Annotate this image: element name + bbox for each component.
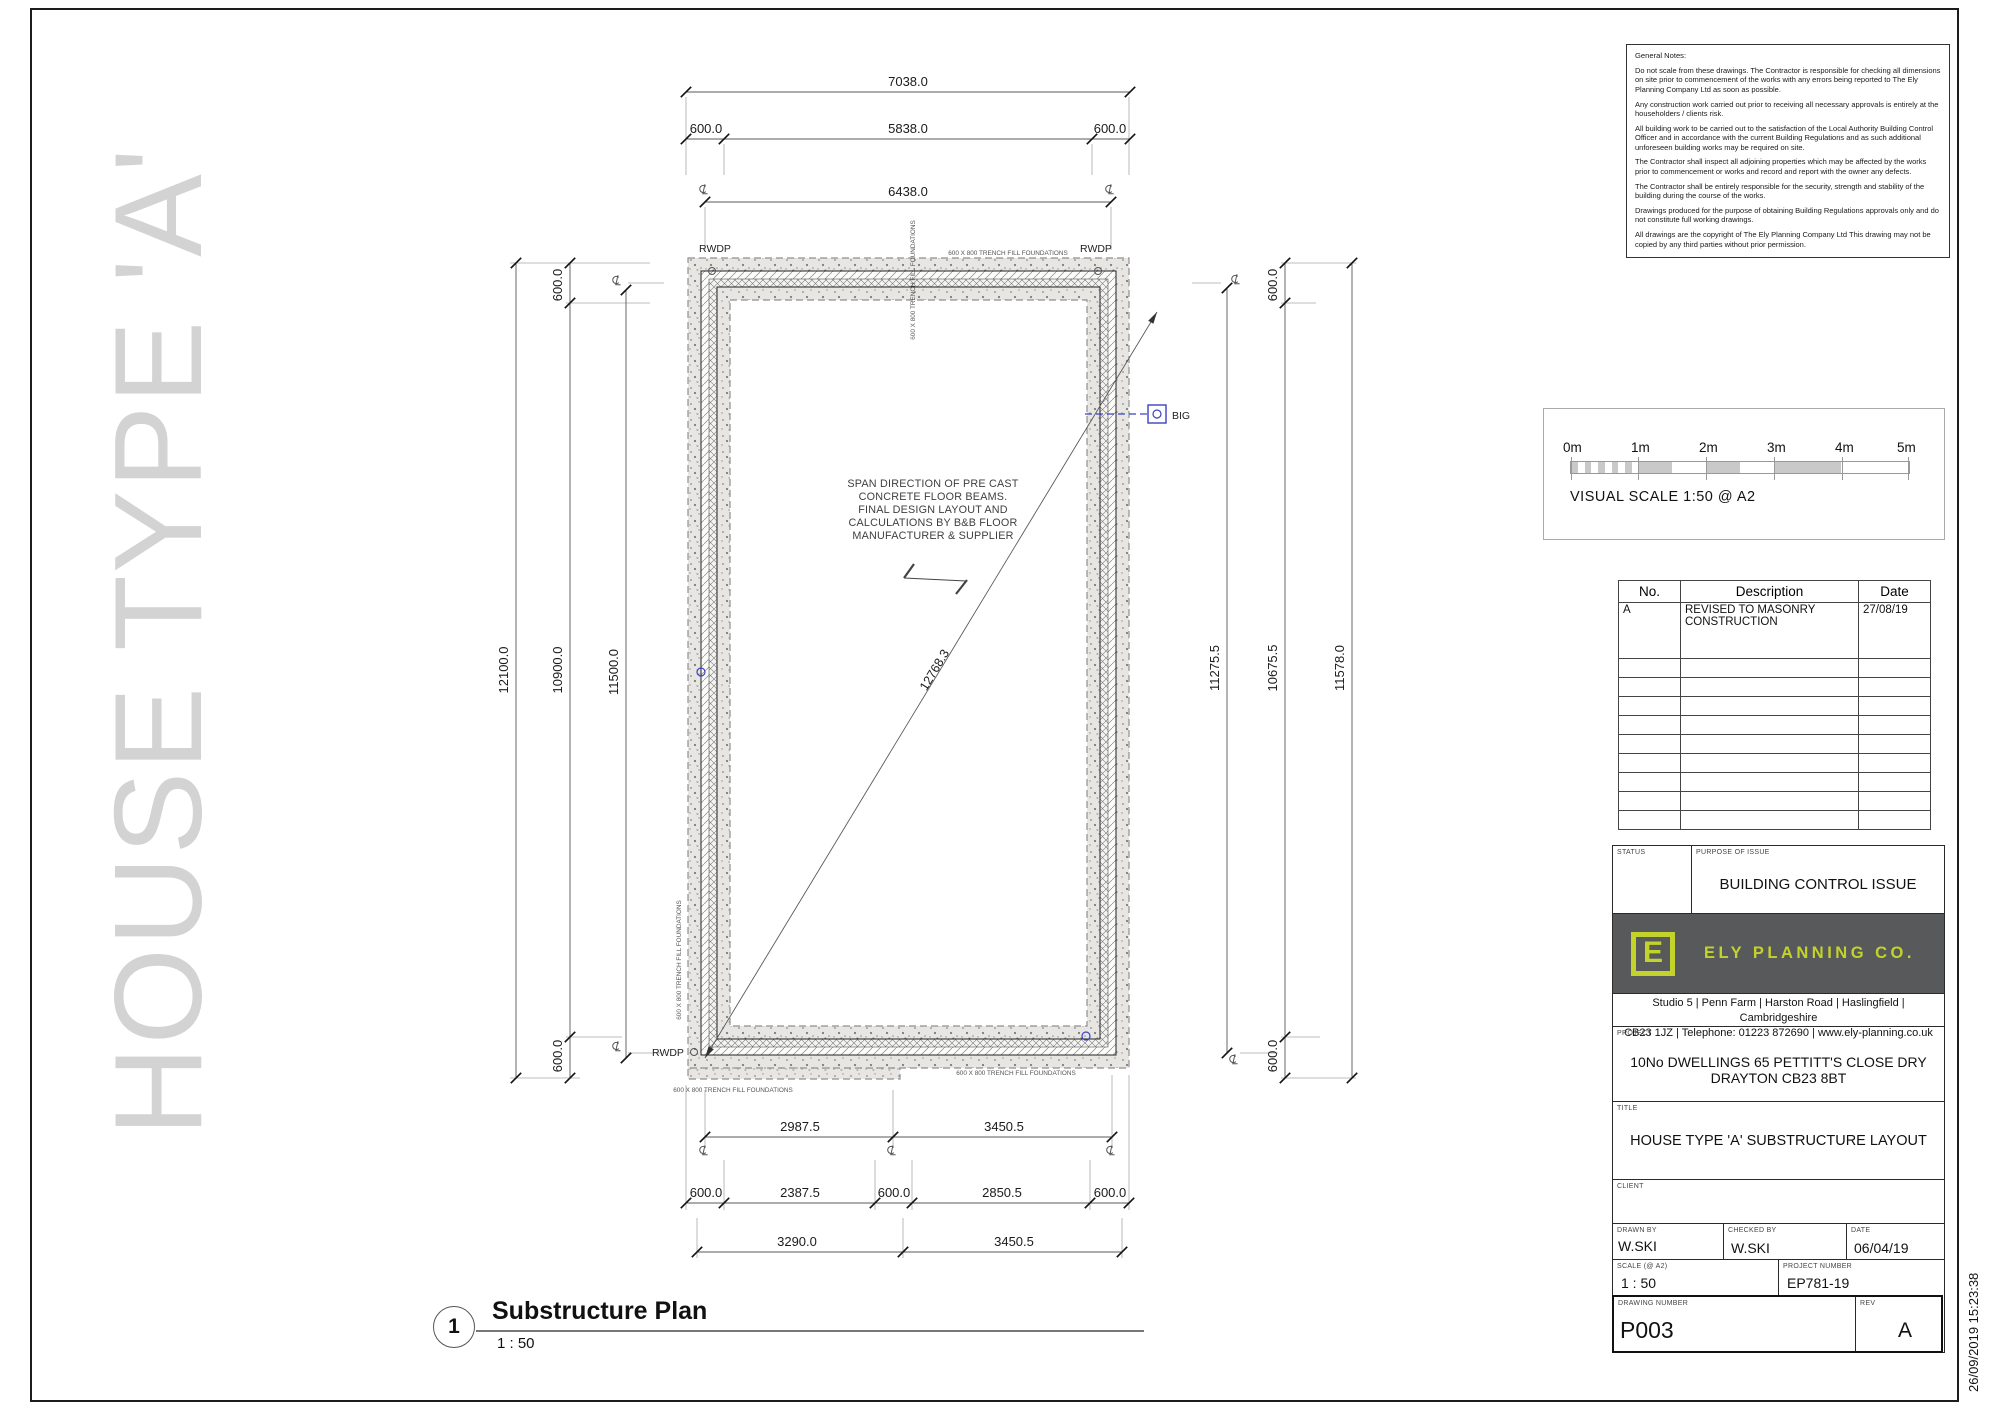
scale-cell: SCALE (@ A2) 1 : 50 <box>1613 1260 1778 1296</box>
dim-right-600-bottom: 600.0 <box>1265 1040 1280 1073</box>
scale-label-0m: 0m <box>1563 440 1582 455</box>
dim-bottom-overall-left: 3290.0 <box>777 1234 817 1249</box>
company-address: Studio 5 | Penn Farm | Harston Road | Ha… <box>1613 993 1944 1026</box>
project-number-label: PROJECT NUMBER <box>1783 1263 1852 1270</box>
general-note: Do not scale from these drawings. The Co… <box>1635 66 1941 95</box>
general-notes-title: General Notes: <box>1635 51 1941 61</box>
view-scale: 1 : 50 <box>497 1335 535 1352</box>
revision-header-description: Description <box>1681 581 1859 603</box>
trench-label-bottom-right: 600 X 800 TRENCH FILL FOUNDATIONS <box>956 1070 1076 1077</box>
general-note: All building work to be carried out to t… <box>1635 124 1941 153</box>
drawn-by-cell: DRAWN BY W.SKI <box>1613 1224 1723 1259</box>
dim-top-600-right: 600.0 <box>1094 121 1127 136</box>
view-title: Substructure Plan <box>492 1297 707 1326</box>
project-cell: PROJECT 10No DWELLINGS 65 PETTITT'S CLOS… <box>1613 1027 1944 1101</box>
scale-label-1m: 1m <box>1631 440 1650 455</box>
print-timestamp: 26/09/2019 15:23:38 <box>1966 1273 1981 1392</box>
drawing-title: HOUSE TYPE 'A' SUBSTRUCTURE LAYOUT <box>1630 1133 1927 1149</box>
project-number-value: EP781-19 <box>1787 1275 1944 1291</box>
date-value: 06/04/19 <box>1854 1240 1944 1256</box>
date-label: DATE <box>1851 1227 1870 1234</box>
scale-label-4m: 4m <box>1835 440 1854 455</box>
checked-by-label: CHECKED BY <box>1728 1227 1777 1234</box>
revision-header-row: No. Description Date <box>1619 581 1931 603</box>
dim-bottom-600-b: 600.0 <box>878 1185 911 1200</box>
purpose-value: BUILDING CONTROL ISSUE <box>1720 876 1917 893</box>
client-label: CLIENT <box>1617 1183 1644 1190</box>
client-cell: CLIENT <box>1613 1180 1944 1223</box>
revision-row-empty <box>1619 659 1931 678</box>
view-callout-number: 1 <box>448 1315 460 1339</box>
logo-band: E ELY PLANNING CO. <box>1613 913 1944 993</box>
scale-label-2m: 2m <box>1699 440 1718 455</box>
scale-value: 1 : 50 <box>1621 1275 1778 1291</box>
project-label: PROJECT <box>1617 1030 1652 1037</box>
dim-left-600-top: 600.0 <box>550 269 565 302</box>
substructure-plan-drawing: 7038.0 600.0 5838.0 600.0 6438.0 12100.0… <box>420 40 1580 1300</box>
revision-table: No. Description Date A REVISED TO MASONR… <box>1618 580 1931 830</box>
rwdp-label-bottom-left: RWDP <box>652 1047 684 1059</box>
plan-interior <box>730 300 1087 1026</box>
drawing-number-cell: DRAWING NUMBER P003 <box>1614 1297 1855 1351</box>
trench-label-bottom-left: 600 X 800 TRENCH FILL FOUNDATIONS <box>673 1087 793 1094</box>
checked-by-value: W.SKI <box>1731 1240 1846 1256</box>
dim-top-overall: 7038.0 <box>888 74 928 89</box>
project-number-cell: PROJECT NUMBER EP781-19 <box>1778 1260 1944 1296</box>
dim-right-600-top: 600.0 <box>1265 269 1280 302</box>
rwdp-label-top-left: RWDP <box>699 243 731 255</box>
revision-no: A <box>1619 603 1681 659</box>
checked-by-cell: CHECKED BY W.SKI <box>1723 1224 1846 1259</box>
project-line1: 10No DWELLINGS 65 PETTITT'S CLOSE DRY <box>1630 1054 1927 1070</box>
visual-scale-box: 0m 1m 2m 3m 4m 5m VISUAL SCALE 1:50 @ A2 <box>1543 408 1945 540</box>
trench-label-left-wall: 600 X 800 TRENCH FILL FOUNDATIONS <box>676 900 683 1020</box>
purpose-cell: PURPOSE OF ISSUE BUILDING CONTROL ISSUE <box>1691 846 1944 913</box>
plan-walls <box>688 258 1129 1079</box>
revision-row-empty <box>1619 773 1931 792</box>
revision-row-empty <box>1619 735 1931 754</box>
purpose-label: PURPOSE OF ISSUE <box>1696 849 1770 856</box>
rev-label: REV <box>1860 1300 1875 1307</box>
revision-row-empty <box>1619 811 1931 830</box>
span-note-line1: SPAN DIRECTION OF PRE CAST <box>847 478 1018 490</box>
span-note-line3: FINAL DESIGN LAYOUT AND <box>858 504 1008 516</box>
general-note: All drawings are the copyright of The El… <box>1635 230 1941 249</box>
dim-left-inner: 10900.0 <box>550 647 565 694</box>
dim-left-600-bottom: 600.0 <box>550 1040 565 1073</box>
visual-scale-caption: VISUAL SCALE 1:50 @ A2 <box>1570 489 1756 505</box>
rev-value: A <box>1898 1319 1941 1343</box>
general-note: Drawings produced for the purpose of obt… <box>1635 206 1941 225</box>
address-line1: Studio 5 | Penn Farm | Harston Road | Ha… <box>1613 996 1944 1026</box>
revision-row-empty <box>1619 716 1931 735</box>
revision-row-empty <box>1619 792 1931 811</box>
company-name: ELY PLANNING CO. <box>1675 944 1944 963</box>
revision-description: REVISED TO MASONRY CONSTRUCTION <box>1681 603 1859 659</box>
rev-cell: REV A <box>1855 1297 1941 1351</box>
general-note: The Contractor shall be entirely respons… <box>1635 182 1941 201</box>
span-note-line4: CALCULATIONS BY B&B FLOOR <box>849 517 1018 529</box>
title-block: STATUS PURPOSE OF ISSUE BUILDING CONTROL… <box>1612 845 1945 1353</box>
trench-label-right-wall: 600 X 800 TRENCH FILL FOUNDATIONS <box>910 220 917 340</box>
company-logo-icon: E <box>1631 932 1675 976</box>
revision-row-empty <box>1619 754 1931 773</box>
dim-right-overall: 11578.0 <box>1332 645 1347 691</box>
logo-letter: E <box>1643 938 1663 968</box>
trench-label-top: 600 X 800 TRENCH FILL FOUNDATIONS <box>948 250 1068 257</box>
rwdp-label-top-right: RWDP <box>1080 243 1112 255</box>
dim-bottom-600-c: 600.0 <box>1094 1185 1127 1200</box>
dim-bottom-cl-right: 3450.5 <box>984 1119 1024 1134</box>
dim-bottom-seg-left: 2387.5 <box>780 1185 820 1200</box>
span-note-line2: CONCRETE FLOOR BEAMS. <box>859 491 1008 503</box>
dim-bottom-seg-right: 2850.5 <box>982 1185 1022 1200</box>
revision-date: 27/08/19 <box>1859 603 1931 659</box>
revision-header-no: No. <box>1619 581 1681 603</box>
project-line2: DRAYTON CB23 8BT <box>1711 1070 1847 1086</box>
title-cell: TITLE HOUSE TYPE 'A' SUBSTRUCTURE LAYOUT <box>1613 1102 1944 1179</box>
general-notes-box: General Notes: Do not scale from these d… <box>1626 44 1950 258</box>
dim-top-inner: 5838.0 <box>888 121 928 136</box>
drawn-by-value: W.SKI <box>1618 1238 1723 1254</box>
title-label: TITLE <box>1617 1105 1638 1112</box>
dim-left-overall: 12100.0 <box>496 647 511 694</box>
revision-row: A REVISED TO MASONRY CONSTRUCTION 27/08/… <box>1619 603 1931 659</box>
general-note: Any construction work carried out prior … <box>1635 100 1941 119</box>
drawing-number-label: DRAWING NUMBER <box>1618 1300 1688 1307</box>
dim-left-cl: 11500.0 <box>606 649 621 695</box>
view-title-underline <box>476 1330 1144 1332</box>
scale-label: SCALE (@ A2) <box>1617 1263 1667 1270</box>
scale-label-3m: 3m <box>1767 440 1786 455</box>
dim-right-inner: 10675.5 <box>1265 645 1280 692</box>
dim-bottom-overall-right: 3450.5 <box>994 1234 1034 1249</box>
dim-right-cl: 11275.5 <box>1207 645 1222 691</box>
date-cell: DATE 06/04/19 <box>1846 1224 1944 1259</box>
scale-bar: 0m 1m 2m 3m 4m 5m <box>1570 461 1910 474</box>
big-label: BIG <box>1172 410 1190 422</box>
scale-label-5m: 5m <box>1897 440 1916 455</box>
revision-row-empty <box>1619 697 1931 716</box>
drawing-sheet: HOUSE TYPE 'A' <box>0 0 2000 1414</box>
dim-bottom-600-a: 600.0 <box>690 1185 723 1200</box>
revision-row-empty <box>1619 678 1931 697</box>
dim-bottom-cl-left: 2987.5 <box>780 1119 820 1134</box>
drawing-number-value: P003 <box>1620 1317 1855 1344</box>
view-callout-circle: 1 <box>433 1306 475 1348</box>
dim-top-600-left: 600.0 <box>690 121 723 136</box>
drawn-by-label: DRAWN BY <box>1617 1227 1657 1234</box>
general-note: The Contractor shall inspect all adjoini… <box>1635 157 1941 176</box>
span-note-line5: MANUFACTURER & SUPPLIER <box>852 530 1013 542</box>
status-cell: STATUS <box>1613 846 1691 913</box>
dim-top-cl: 6438.0 <box>888 184 928 199</box>
status-label: STATUS <box>1617 849 1645 856</box>
revision-header-date: Date <box>1859 581 1931 603</box>
